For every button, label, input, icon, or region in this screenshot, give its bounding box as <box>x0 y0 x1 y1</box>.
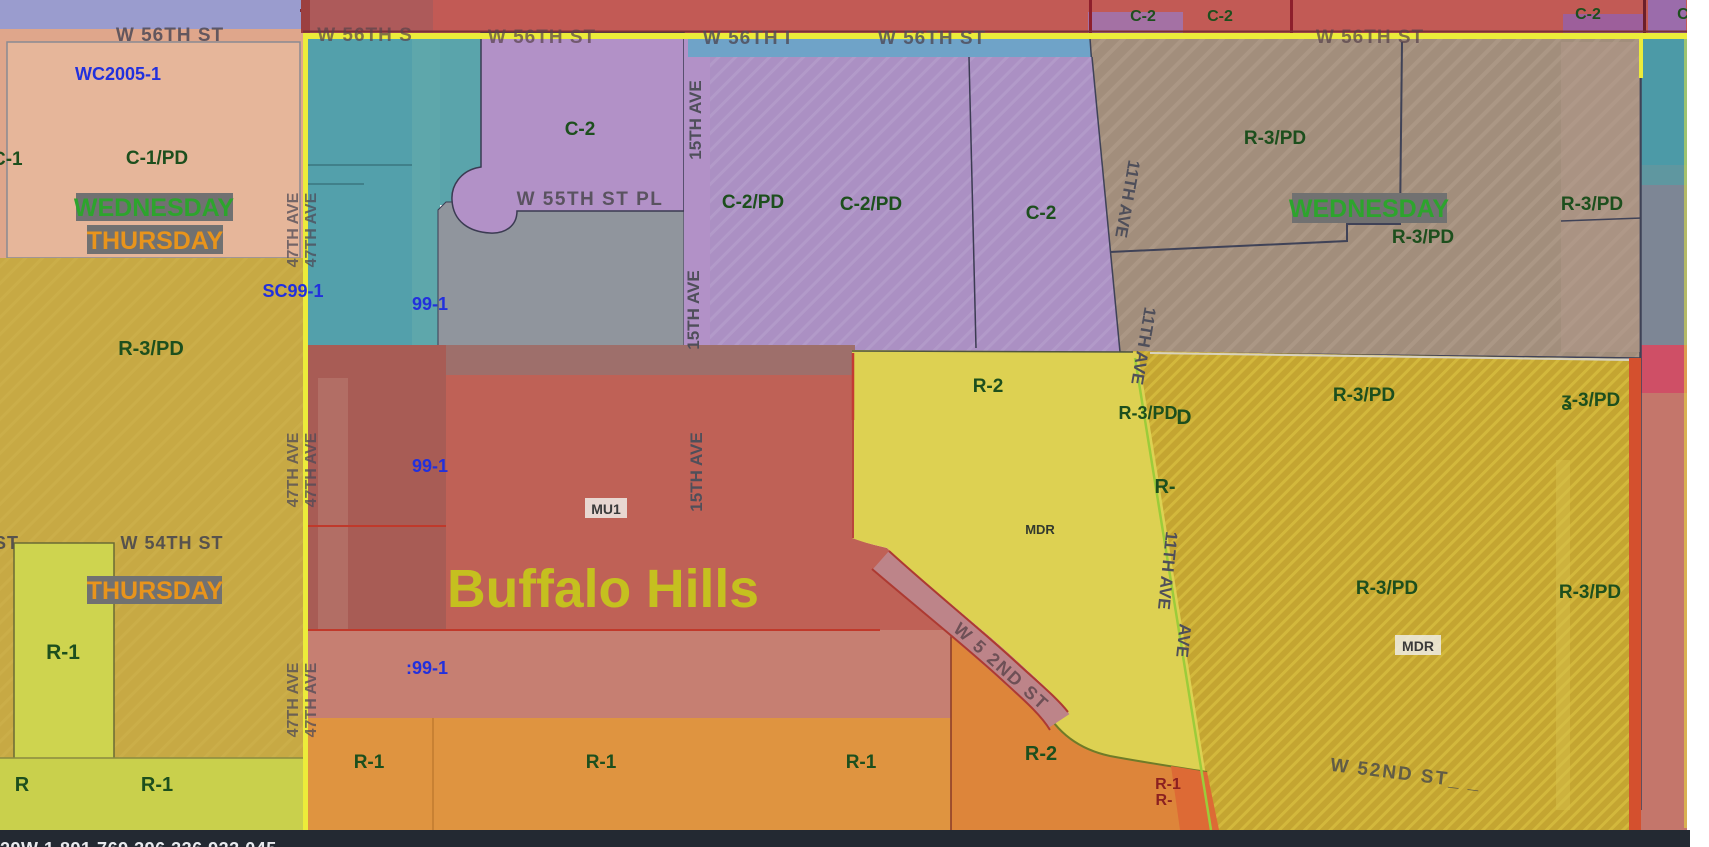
svg-text:W 56TH S: W 56TH S <box>317 25 413 46</box>
svg-text:W 56TH ST: W 56TH ST <box>488 27 596 48</box>
svg-text::99-1: :99-1 <box>406 658 448 678</box>
svg-text:MU1: MU1 <box>591 501 621 517</box>
svg-text:47TH AVE: 47TH AVE <box>303 432 320 507</box>
svg-text:R-1: R-1 <box>354 752 385 773</box>
svg-text:W 56TH I: W 56TH I <box>703 28 791 49</box>
svg-text:99-1: 99-1 <box>412 294 448 314</box>
svg-text:W 56TH ST: W 56TH ST <box>116 25 224 46</box>
svg-text:Buffalo Hills: Buffalo Hills <box>447 559 759 619</box>
svg-text:ST: ST <box>0 533 19 553</box>
svg-text:R-1: R-1 <box>141 774 173 796</box>
svg-text:SC99-1: SC99-1 <box>262 281 323 301</box>
svg-text:D: D <box>1176 406 1191 429</box>
svg-text:47TH AVE: 47TH AVE <box>303 192 320 267</box>
svg-text:C-1: C-1 <box>0 149 23 170</box>
svg-text:R-3/PD: R-3/PD <box>118 338 184 360</box>
svg-text:W 56TH ST: W 56TH ST <box>878 28 986 49</box>
svg-text:R-: R- <box>1156 792 1173 809</box>
svg-text:29W 1,891,769,396,336,933,045: 29W 1,891,769,396,336,933,045 <box>0 839 277 847</box>
svg-text:R-1: R-1 <box>1155 776 1181 793</box>
svg-text:99-1: 99-1 <box>412 456 448 476</box>
svg-text:C-2: C-2 <box>1130 8 1156 25</box>
svg-text:ʓ-3/PD: ʓ-3/PD <box>1562 390 1621 411</box>
svg-text:15TH AVE: 15TH AVE <box>684 270 703 349</box>
svg-text:R-: R- <box>1154 476 1175 498</box>
svg-text:47TH AVE: 47TH AVE <box>285 432 302 507</box>
svg-text:R-3/PD: R-3/PD <box>1356 578 1418 599</box>
svg-text:R-3/PD: R-3/PD <box>1118 403 1177 423</box>
svg-text:W 55TH ST PL: W 55TH ST PL <box>517 189 664 210</box>
svg-text:WEDNESDAY: WEDNESDAY <box>1289 195 1450 223</box>
svg-text:47TH AVE: 47TH AVE <box>285 662 302 737</box>
svg-text:C-2/PD: C-2/PD <box>722 192 784 213</box>
svg-text:R-1: R-1 <box>846 752 877 773</box>
svg-text:WC2005-1: WC2005-1 <box>75 64 161 84</box>
svg-text:R-3/PD: R-3/PD <box>1561 194 1623 215</box>
svg-text:C-2: C-2 <box>1026 203 1057 224</box>
svg-text:MDR: MDR <box>1402 638 1434 654</box>
svg-text:R-3/PD: R-3/PD <box>1244 128 1306 149</box>
svg-text:C-2: C-2 <box>1207 8 1233 25</box>
svg-text:47TH AVE: 47TH AVE <box>303 662 320 737</box>
svg-text:AVE: AVE <box>1172 623 1194 659</box>
svg-text:C-2/PD: C-2/PD <box>840 194 902 215</box>
svg-text:R-3/PD: R-3/PD <box>1392 227 1454 248</box>
svg-text:C-1/PD: C-1/PD <box>126 148 188 169</box>
svg-text:MDR: MDR <box>1025 522 1055 537</box>
svg-text:THURSDAY: THURSDAY <box>87 577 224 605</box>
svg-text:47TH AVE: 47TH AVE <box>285 192 302 267</box>
svg-text:R-3/PD: R-3/PD <box>1559 582 1621 603</box>
svg-text:C-2: C-2 <box>1575 6 1601 23</box>
svg-text:R: R <box>15 774 30 796</box>
svg-text:15TH AVE: 15TH AVE <box>686 80 705 159</box>
svg-text:R-3/PD: R-3/PD <box>1333 385 1395 406</box>
svg-text:W 54TH ST: W 54TH ST <box>120 533 223 553</box>
svg-text:R-1: R-1 <box>46 641 80 664</box>
svg-text:W 56TH ST: W 56TH ST <box>1316 27 1424 48</box>
svg-text:R-1: R-1 <box>586 752 617 773</box>
svg-text:WEDNESDAY: WEDNESDAY <box>74 194 235 222</box>
svg-text:R-2: R-2 <box>973 376 1004 397</box>
svg-text:15TH AVE: 15TH AVE <box>687 432 706 511</box>
svg-text:C-2: C-2 <box>565 119 596 140</box>
svg-text:R-2: R-2 <box>1025 743 1057 765</box>
svg-text:THURSDAY: THURSDAY <box>87 227 224 255</box>
